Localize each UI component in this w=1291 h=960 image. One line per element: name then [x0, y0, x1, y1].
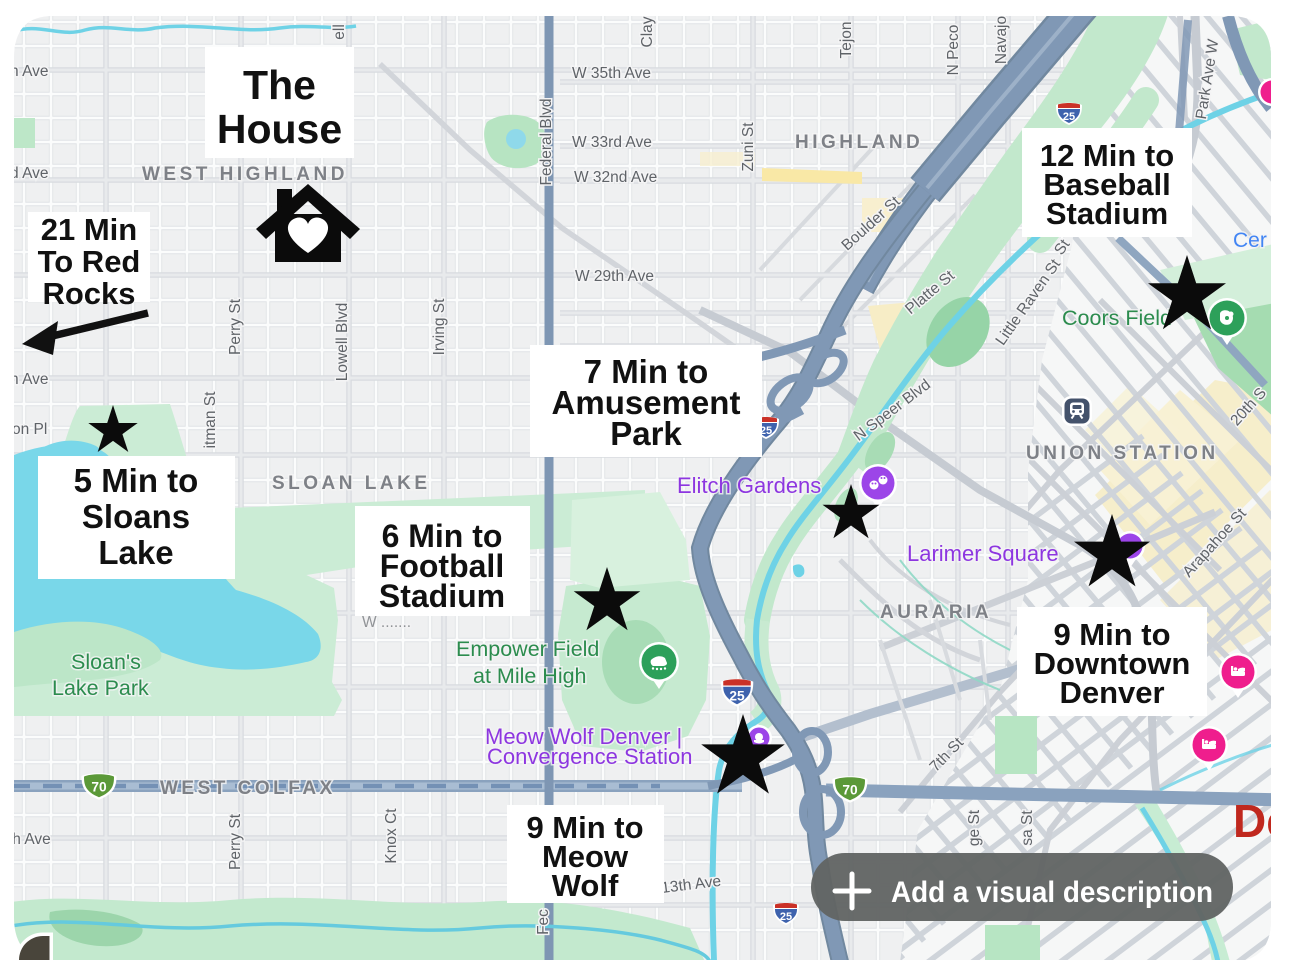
svg-text:Elitch Gardens: Elitch Gardens: [677, 473, 821, 498]
svg-text:Knox Ct: Knox Ct: [383, 808, 400, 864]
svg-text:Sloan's: Sloan's: [71, 650, 141, 674]
svg-text:70: 70: [842, 783, 858, 798]
svg-text:21 Min: 21 Min: [41, 212, 137, 247]
svg-text:UNION STATION: UNION STATION: [1026, 443, 1219, 464]
svg-text:W 32nd Ave: W 32nd Ave: [574, 169, 657, 186]
svg-text:Stadium: Stadium: [379, 578, 505, 614]
svg-text:Wolf: Wolf: [552, 868, 619, 903]
svg-text:Clay: Clay: [639, 16, 656, 47]
svg-text:sa St: sa St: [1019, 810, 1036, 846]
svg-text:on Pl: on Pl: [12, 421, 47, 438]
svg-text:ell: ell: [331, 24, 348, 40]
svg-text:Fec: Fec: [535, 909, 552, 935]
svg-text:Perry St: Perry St: [227, 298, 244, 355]
svg-text:h Ave: h Ave: [10, 63, 49, 80]
svg-text:Larimer Square: Larimer Square: [907, 541, 1059, 566]
svg-text:itman St: itman St: [202, 391, 219, 449]
svg-text:Perry St: Perry St: [227, 813, 244, 870]
svg-text:Park: Park: [610, 415, 682, 452]
svg-text:Coors Field: Coors Field: [1062, 306, 1172, 330]
svg-text:Navajo: Navajo: [993, 16, 1010, 64]
svg-text:Empower Field: Empower Field: [456, 637, 599, 661]
svg-text:WEST HIGHLAND: WEST HIGHLAND: [142, 164, 348, 185]
svg-text:SLOAN LAKE: SLOAN LAKE: [272, 473, 431, 494]
svg-text:ge St: ge St: [966, 809, 983, 846]
svg-text:Lake Park: Lake Park: [52, 676, 149, 700]
svg-text:Sloans: Sloans: [82, 498, 190, 535]
svg-text:th Ave: th Ave: [8, 831, 51, 848]
svg-text:AURARIA: AURARIA: [880, 602, 992, 623]
svg-text:Lake: Lake: [98, 534, 173, 571]
svg-text:at Mile High: at Mile High: [473, 664, 587, 688]
svg-text:W 35th Ave: W 35th Ave: [572, 65, 651, 82]
svg-text:Add a visual description: Add a visual description: [891, 876, 1213, 909]
svg-text:5 Min to: 5 Min to: [74, 462, 199, 499]
svg-text:Rocks: Rocks: [42, 276, 135, 311]
svg-text:Federal Blvd: Federal Blvd: [538, 98, 555, 185]
svg-text:25: 25: [729, 689, 745, 704]
svg-text:Irving St: Irving St: [431, 298, 448, 356]
svg-text:W 33rd Ave: W 33rd Ave: [572, 134, 652, 151]
svg-text:N Peco: N Peco: [945, 25, 962, 76]
svg-text:d Ave: d Ave: [10, 165, 49, 182]
svg-text:25: 25: [1063, 111, 1075, 123]
svg-text:W .......: W .......: [362, 614, 411, 631]
svg-text:Lowell Blvd: Lowell Blvd: [334, 303, 351, 381]
svg-text:Convergence Station: Convergence Station: [487, 744, 692, 769]
svg-text:House: House: [217, 106, 342, 152]
svg-text:WEST COLFAX: WEST COLFAX: [160, 778, 336, 799]
svg-text:Zuni St: Zuni St: [740, 122, 757, 172]
svg-text:70: 70: [91, 780, 107, 795]
svg-text:The: The: [243, 62, 316, 108]
svg-text:To Red: To Red: [38, 244, 141, 279]
svg-text:HIGHLAND: HIGHLAND: [795, 132, 923, 153]
svg-text:Tejon: Tejon: [838, 21, 855, 58]
svg-text:W 29th Ave: W 29th Ave: [575, 268, 654, 285]
svg-text:Stadium: Stadium: [1046, 196, 1168, 231]
svg-text:h Ave: h Ave: [10, 371, 49, 388]
svg-text:Denver: Denver: [1059, 675, 1164, 710]
svg-text:Cer: Cer: [1233, 229, 1267, 252]
svg-text:25: 25: [780, 911, 792, 923]
